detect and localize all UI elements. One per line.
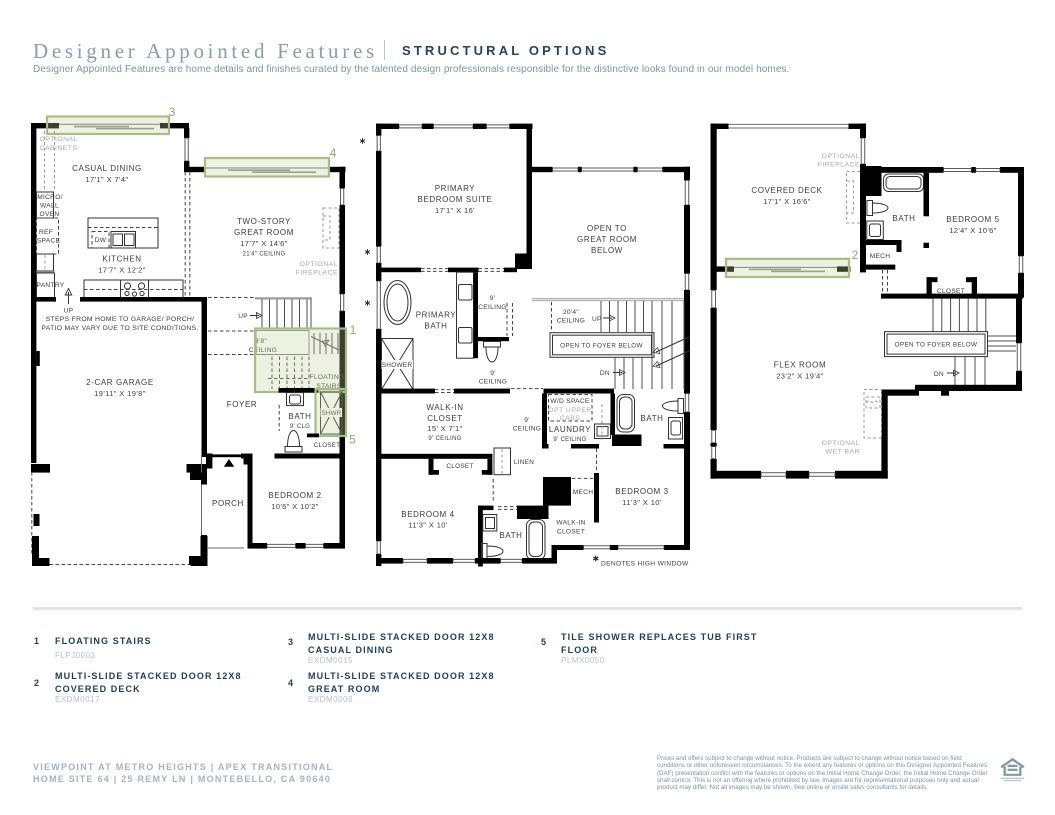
- svg-text:FOYER: FOYER: [227, 400, 258, 409]
- svg-text:REF: REF: [39, 229, 53, 236]
- svg-text:17'7" X 14'6": 17'7" X 14'6": [240, 239, 288, 248]
- svg-text:9': 9': [490, 295, 496, 302]
- svg-text:9' CLG: 9' CLG: [290, 424, 310, 430]
- svg-text:CLOSET: CLOSET: [557, 529, 585, 536]
- svg-text:BEDROOM 4: BEDROOM 4: [401, 510, 454, 519]
- svg-text:3: 3: [169, 105, 176, 119]
- svg-text:9' CEILING: 9' CEILING: [428, 436, 461, 442]
- svg-text:1: 1: [350, 323, 357, 337]
- svg-text:CABINETS: CABINETS: [40, 145, 78, 152]
- svg-text:TWO-STORY: TWO-STORY: [237, 217, 291, 226]
- svg-text:12'4" X 10'6": 12'4" X 10'6": [949, 226, 997, 235]
- svg-text:FLEX ROOM: FLEX ROOM: [774, 361, 827, 370]
- svg-text:4: 4: [330, 146, 337, 160]
- svg-text:OPEN TO FOYER BELOW: OPEN TO FOYER BELOW: [560, 343, 643, 350]
- svg-text:2: 2: [852, 248, 859, 262]
- svg-text:5: 5: [349, 433, 356, 447]
- svg-text:11'3" X 10': 11'3" X 10': [408, 521, 448, 530]
- svg-text:CLOSET: CLOSET: [314, 442, 341, 449]
- svg-text:2-CAR GARAGE: 2-CAR GARAGE: [86, 378, 154, 387]
- svg-text:WET BAR: WET BAR: [826, 449, 860, 456]
- svg-text:OPTIONAL: OPTIONAL: [822, 153, 860, 160]
- svg-text:SHOWER: SHOWER: [382, 362, 413, 369]
- svg-text:9': 9': [524, 417, 530, 424]
- svg-text:OPTIONAL: OPTIONAL: [300, 261, 338, 268]
- svg-text:BATH: BATH: [424, 322, 447, 331]
- svg-text:MECH: MECH: [573, 489, 594, 496]
- svg-text:STEPS FROM HOME TO GARAGE/ POR: STEPS FROM HOME TO GARAGE/ PORCH/: [46, 316, 195, 323]
- svg-text:COVERED DECK: COVERED DECK: [751, 186, 822, 195]
- svg-text:OPTIONAL: OPTIONAL: [822, 440, 860, 447]
- svg-text:10'6" X 10'2": 10'6" X 10'2": [271, 502, 319, 511]
- svg-text:MICRO/: MICRO/: [37, 194, 63, 201]
- svg-text:PATIO MAY VARY DUE TO SITE CON: PATIO MAY VARY DUE TO SITE CONDITIONS.: [41, 325, 198, 332]
- svg-text:CASUAL DINING: CASUAL DINING: [72, 164, 142, 173]
- svg-text:BATH: BATH: [499, 531, 522, 540]
- svg-text:17'1" X 7'4": 17'1" X 7'4": [85, 175, 128, 184]
- svg-text:BATH: BATH: [288, 412, 311, 421]
- svg-text:WALK-IN: WALK-IN: [556, 520, 585, 527]
- svg-text:FIREPLACE: FIREPLACE: [818, 162, 860, 169]
- svg-text:BATH: BATH: [640, 414, 663, 423]
- svg-text:BEDROOM SUITE: BEDROOM SUITE: [418, 195, 493, 204]
- svg-text:UP: UP: [592, 316, 602, 323]
- svg-text:23'2" X 19'4": 23'2" X 19'4": [776, 372, 824, 381]
- svg-text:21'4" CEILING: 21'4" CEILING: [243, 252, 286, 258]
- svg-text:GREAT ROOM: GREAT ROOM: [234, 228, 294, 237]
- svg-text:LAUNDRY: LAUNDRY: [549, 425, 591, 434]
- svg-text:BEDROOM 3: BEDROOM 3: [615, 487, 668, 496]
- svg-text:DW: DW: [95, 237, 107, 244]
- svg-text:PORCH: PORCH: [212, 499, 244, 508]
- svg-text:CABS: CABS: [560, 415, 581, 422]
- svg-text:DENOTES HIGH WINDOW: DENOTES HIGH WINDOW: [601, 561, 689, 568]
- svg-text:9' CEILING: 9' CEILING: [553, 437, 586, 443]
- svg-text:19'11" X 19'8": 19'11" X 19'8": [94, 389, 146, 398]
- svg-text:WALL: WALL: [40, 203, 59, 210]
- svg-text:BEDROOM 5: BEDROOM 5: [946, 215, 999, 224]
- svg-text:20'4": 20'4": [563, 309, 579, 316]
- svg-text:OPEN TO FOYER BELOW: OPEN TO FOYER BELOW: [895, 342, 978, 349]
- svg-text:MECH: MECH: [870, 253, 891, 260]
- svg-text:W/D SPACE: W/D SPACE: [550, 398, 590, 405]
- svg-text:BELOW: BELOW: [591, 246, 623, 255]
- svg-text:BATH: BATH: [892, 214, 915, 223]
- svg-text:FIREPLACE: FIREPLACE: [296, 270, 338, 277]
- svg-text:9': 9': [490, 370, 496, 377]
- svg-text:UP: UP: [238, 313, 248, 320]
- svg-text:UP: UP: [64, 308, 74, 315]
- svg-text:PANTRY: PANTRY: [37, 282, 65, 289]
- svg-text:OPTIONAL: OPTIONAL: [40, 136, 78, 143]
- svg-text:DN: DN: [600, 370, 610, 377]
- svg-text:17'1" X 16': 17'1" X 16': [435, 206, 475, 215]
- svg-text:CEILING: CEILING: [479, 379, 507, 386]
- svg-text:OPEN TO: OPEN TO: [587, 224, 627, 233]
- svg-text:17'1" X 16'6": 17'1" X 16'6": [763, 197, 811, 206]
- svg-text:CLOSET: CLOSET: [446, 463, 473, 470]
- svg-text:LINEN: LINEN: [514, 459, 534, 466]
- svg-text:BEDROOM 2: BEDROOM 2: [268, 491, 321, 500]
- svg-text:11'3" X 10': 11'3" X 10': [622, 498, 662, 507]
- svg-text:CEILING: CEILING: [478, 304, 506, 311]
- svg-text:OPT UPPER: OPT UPPER: [548, 407, 592, 414]
- svg-text:CLOSET: CLOSET: [427, 414, 463, 423]
- svg-text:OVEN: OVEN: [40, 211, 60, 218]
- svg-text:DN: DN: [934, 371, 944, 378]
- svg-text:CEILING: CEILING: [513, 426, 541, 433]
- svg-text:KITCHEN: KITCHEN: [102, 255, 141, 264]
- svg-text:CEILING: CEILING: [557, 318, 585, 325]
- svg-text:SPACE: SPACE: [37, 238, 61, 245]
- svg-text:PRIMARY: PRIMARY: [435, 184, 476, 193]
- svg-text:PRIMARY: PRIMARY: [416, 311, 457, 320]
- svg-text:15' X 7'1": 15' X 7'1": [427, 424, 462, 433]
- svg-text:17'7" X 12'2": 17'7" X 12'2": [98, 266, 146, 275]
- svg-text:GREAT ROOM: GREAT ROOM: [577, 235, 637, 244]
- svg-text:WALK-IN: WALK-IN: [426, 403, 463, 412]
